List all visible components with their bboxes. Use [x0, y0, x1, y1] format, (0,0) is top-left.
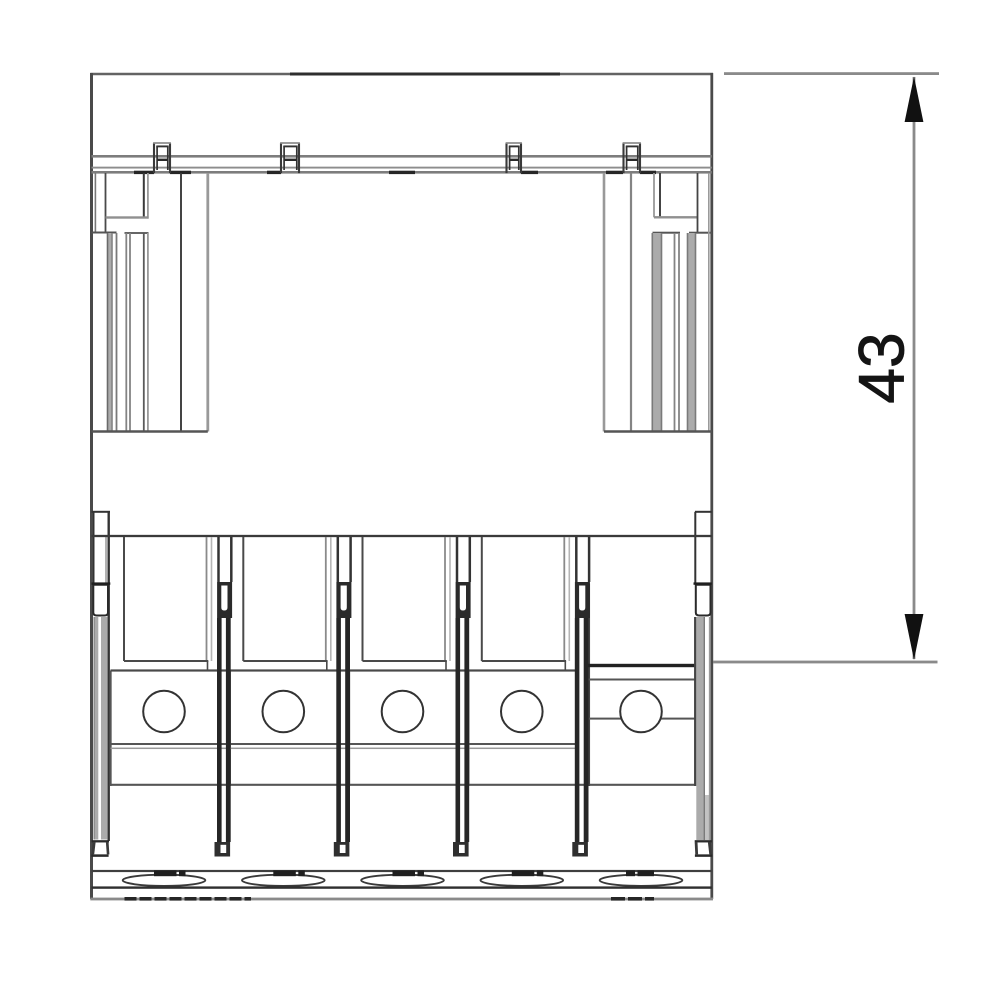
svg-text:43: 43	[846, 332, 918, 403]
